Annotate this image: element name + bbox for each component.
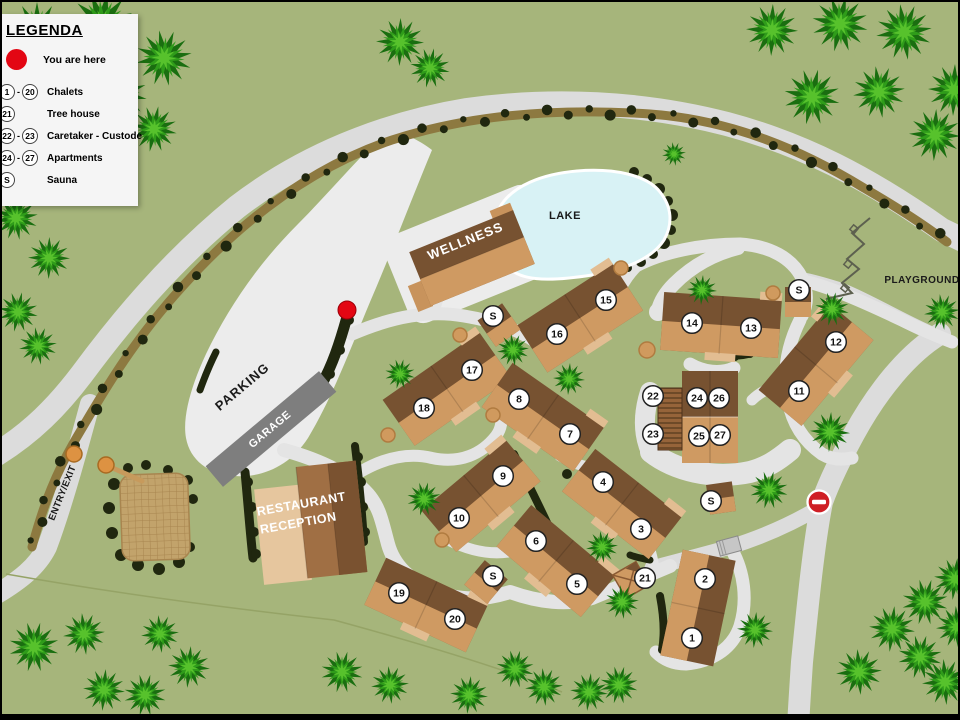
legend-row-label: Sauna [47, 175, 77, 186]
hedge-bush [323, 169, 330, 176]
svg-text:S: S [489, 571, 496, 583]
bush [325, 369, 335, 379]
marker-6: 6 [526, 531, 547, 552]
legend-marker-circle: 20 [22, 84, 38, 100]
hedge-bush [138, 335, 148, 345]
tan-dot [766, 286, 780, 300]
pine-tree-icon [553, 363, 585, 395]
tan-dot [486, 408, 500, 422]
hedge-bush [91, 404, 102, 415]
pine-tree-icon [899, 636, 942, 679]
pine-tree-icon [934, 558, 960, 600]
hedge-bush [254, 215, 262, 223]
legend-marker-circle: 24 [0, 150, 15, 166]
hedge-bush [27, 537, 33, 543]
bush [335, 345, 345, 355]
pine-tree-icon [601, 667, 638, 704]
lake-label: LAKE [549, 210, 581, 222]
pine-tree-icon [813, 2, 868, 51]
hatched-court [120, 473, 191, 561]
hedge-bush [523, 114, 530, 121]
pine-tree-icon [909, 109, 960, 161]
marker-18: 18 [414, 398, 435, 419]
hedge-bush [916, 223, 923, 230]
legend-marker-circle: 23 [22, 128, 38, 144]
playground-label: PLAYGROUND [884, 275, 959, 286]
hedge-bush [586, 105, 593, 112]
hedge-bush [828, 162, 838, 172]
svg-text:16: 16 [551, 329, 563, 341]
hedge-bush [750, 127, 761, 138]
hedge-bush [55, 456, 66, 467]
marker-2: 2 [695, 569, 716, 590]
svg-text:15: 15 [600, 295, 612, 307]
bush [353, 452, 363, 462]
bush-hedge [660, 596, 664, 650]
marker-27: 27 [710, 425, 731, 446]
road [690, 364, 734, 371]
legend-marker-circle: 27 [22, 150, 38, 166]
legend-range-dash: - [17, 131, 20, 141]
marker-24: 24 [687, 388, 708, 409]
svg-text:S: S [795, 285, 802, 297]
bush [188, 494, 198, 504]
hedge-bush [203, 253, 210, 260]
bush [249, 527, 259, 537]
svg-text:5: 5 [574, 579, 580, 591]
svg-text:2: 2 [702, 574, 708, 586]
bush [251, 549, 261, 559]
pine-tree-icon [928, 64, 960, 116]
pine-tree-icon [141, 615, 179, 653]
hedge-bush [173, 282, 184, 293]
svg-text:11: 11 [793, 386, 804, 398]
hedge-bush [688, 118, 698, 128]
pine-tree-icon [662, 142, 686, 166]
marker-25: 25 [689, 426, 710, 447]
hedge-bush [935, 228, 946, 239]
pine-tree-icon [131, 106, 176, 151]
svg-text:20: 20 [449, 614, 461, 626]
svg-text:S: S [707, 496, 714, 508]
marker-S: S [483, 566, 504, 587]
svg-text:6: 6 [533, 536, 539, 548]
svg-text:8: 8 [516, 394, 522, 406]
legend-title: LEGENDA [6, 22, 134, 39]
hedge-bush [360, 149, 369, 158]
marker-21: 21 [635, 568, 656, 589]
legend-row-label: Tree house [47, 109, 100, 120]
legend-panel: LEGENDA You are here 1-20Chalets21Tree h… [2, 14, 138, 206]
marker-13: 13 [741, 318, 762, 339]
pine-tree-icon [371, 666, 409, 704]
resort-map-screenshot: 1234567891011121314151617181920212223242… [0, 0, 960, 720]
marker-11: 11 [789, 381, 810, 402]
legend-row-chalets: 1-20Chalets [4, 84, 134, 100]
hedge-bush [122, 350, 128, 356]
svg-text:12: 12 [830, 337, 842, 349]
marker-19: 19 [389, 583, 410, 604]
hedge-bush [501, 109, 509, 117]
hedge-bush [627, 105, 637, 115]
svg-text:19: 19 [393, 588, 405, 600]
legend-range-dash: - [17, 153, 20, 163]
marker-5: 5 [567, 574, 588, 595]
hedge-bush [670, 110, 676, 116]
legend-marker-circle: S [0, 172, 15, 188]
legend-row-sauna: SSauna [4, 172, 134, 188]
hedge-bush [115, 370, 123, 378]
chalet-19-20 [361, 551, 490, 658]
svg-text:13: 13 [745, 323, 757, 335]
pine-tree-icon [376, 18, 424, 66]
pine-tree-icon [136, 30, 191, 85]
bush [141, 460, 151, 470]
svg-text:23: 23 [647, 429, 659, 441]
hedge-bush [286, 189, 296, 199]
hedge-bush [398, 134, 409, 145]
gate-post [66, 446, 82, 462]
hedge-bush [564, 111, 573, 120]
bush [106, 527, 118, 539]
pine-tree-icon [28, 237, 70, 279]
svg-text:18: 18 [418, 403, 430, 415]
hedge-bush [337, 152, 348, 163]
pine-tree-icon [322, 652, 363, 693]
hedge-bush [440, 125, 448, 133]
marker-14: 14 [682, 313, 703, 334]
marker-7: 7 [560, 424, 581, 445]
hedge-bush [791, 144, 798, 151]
legend-row-markers: S [0, 172, 43, 188]
legend-rows: 1-20Chalets21Tree house22-23Caretaker - … [4, 84, 134, 188]
pine-tree-icon [83, 669, 125, 711]
svg-text:9: 9 [500, 471, 506, 483]
bush [153, 563, 165, 575]
legend-marker-circle: 1 [0, 84, 15, 100]
hedge-bush [901, 205, 909, 213]
legend-row-markers: 1-20 [0, 84, 43, 100]
marker-S: S [789, 280, 810, 301]
pine-tree-icon [10, 623, 58, 671]
hedge-bush [221, 241, 232, 252]
hedge-bush [301, 173, 309, 181]
resort-map: 1234567891011121314151617181920212223242… [2, 2, 960, 720]
marker-1: 1 [682, 628, 703, 649]
chalet-13-14 [660, 285, 783, 365]
pine-tree-icon [746, 4, 798, 56]
hedge-bush [879, 199, 889, 209]
hedge-bush [605, 110, 616, 121]
hedge-bush [146, 315, 154, 323]
marker-22: 22 [643, 386, 664, 407]
pine-tree-icon [63, 613, 105, 655]
marker-8: 8 [509, 389, 530, 410]
svg-text:10: 10 [453, 513, 465, 525]
tan-dot [453, 328, 467, 342]
svg-text:24: 24 [691, 393, 703, 405]
playground-pad [850, 225, 858, 233]
legend-row-tree-house: 21Tree house [4, 106, 134, 122]
pine-tree-icon [836, 649, 882, 695]
pine-tree-icon [19, 327, 57, 365]
hedge-bush [730, 129, 737, 136]
pine-tree-icon [785, 70, 840, 125]
marker-16: 16 [547, 324, 568, 345]
legend-row-markers: 24-27 [0, 150, 43, 166]
marker-4: 4 [593, 472, 614, 493]
marker-15: 15 [596, 290, 617, 311]
svg-text:1: 1 [689, 633, 695, 645]
tan-dot [435, 533, 449, 547]
hedge-bush [267, 198, 273, 204]
legend-row-markers: 21 [0, 106, 43, 122]
svg-text:3: 3 [638, 524, 644, 536]
tan-dot [614, 261, 628, 275]
legend-row-label: Caretaker - Custode [47, 131, 142, 142]
no-entry-sign [808, 491, 831, 514]
legend-row-caretaker-custode: 22-23Caretaker - Custode [4, 128, 134, 144]
marker-20: 20 [445, 609, 466, 630]
apartments-building [682, 371, 738, 463]
pine-tree-icon [570, 673, 608, 711]
you-are-here-marker [338, 301, 356, 319]
bush [103, 502, 115, 514]
gate-post [98, 457, 114, 473]
hedge-bush [98, 384, 108, 394]
tan-dot [381, 428, 395, 442]
hedge-bush [77, 421, 84, 428]
pine-tree-icon [125, 675, 166, 716]
svg-text:27: 27 [714, 430, 726, 442]
hedge-bush [542, 105, 553, 116]
svg-text:21: 21 [639, 573, 651, 585]
pine-tree-icon [936, 606, 960, 648]
legend-row-label: Chalets [47, 87, 83, 98]
hedge-bush [192, 271, 201, 280]
svg-text:26: 26 [713, 393, 725, 405]
legend-marker-circle: 22 [0, 128, 15, 144]
svg-text:17: 17 [466, 365, 478, 377]
hedge-bush [480, 117, 490, 127]
hedge-bush [165, 303, 172, 310]
you-are-here-label: You are here [43, 54, 106, 66]
pine-tree-icon [876, 4, 931, 59]
bush [562, 469, 572, 479]
marker-10: 10 [449, 508, 470, 529]
marker-S: S [483, 306, 504, 327]
bush [108, 478, 120, 490]
marker-3: 3 [631, 519, 652, 540]
hedge-bush [806, 157, 817, 168]
hedge-bush [417, 123, 427, 133]
svg-text:22: 22 [647, 391, 659, 403]
legend-marker-circle: 21 [0, 106, 15, 122]
hedge-bush [233, 223, 243, 233]
pine-tree-icon [168, 646, 210, 688]
pine-tree-icon [410, 48, 449, 87]
marker-26: 26 [709, 388, 730, 409]
you-are-here-icon [6, 49, 27, 70]
hedge-bush [39, 496, 47, 504]
pine-tree-icon [853, 66, 905, 118]
hedge-bush [844, 178, 852, 186]
svg-text:4: 4 [600, 477, 606, 489]
hedge-bush [378, 137, 385, 144]
svg-text:25: 25 [693, 431, 705, 443]
marker-17: 17 [462, 360, 483, 381]
pine-tree-icon [497, 651, 534, 688]
legend-you-are-here-row: You are here [4, 49, 134, 70]
svg-text:S: S [489, 311, 496, 323]
marker-9: 9 [493, 466, 514, 487]
hedge-bush [711, 117, 719, 125]
pine-tree-icon [2, 292, 38, 331]
svg-text:14: 14 [686, 318, 698, 330]
legend-row-markers: 22-23 [0, 128, 43, 144]
legend-row-label: Apartments [47, 153, 103, 164]
hedge-bush [769, 141, 778, 150]
svg-text:7: 7 [567, 429, 573, 441]
pine-tree-icon [903, 580, 948, 625]
tan-dot [639, 342, 655, 358]
legend-range-dash: - [17, 87, 20, 97]
marker-S: S [701, 491, 722, 512]
legend-row-apartments: 24-27Apartments [4, 150, 134, 166]
hedge-bush [460, 116, 466, 122]
bush [243, 477, 253, 487]
hedge-bush [648, 113, 656, 121]
pine-tree-icon [450, 676, 488, 714]
marker-12: 12 [826, 332, 847, 353]
hedge-bush [866, 184, 872, 190]
marker-23: 23 [643, 424, 664, 445]
